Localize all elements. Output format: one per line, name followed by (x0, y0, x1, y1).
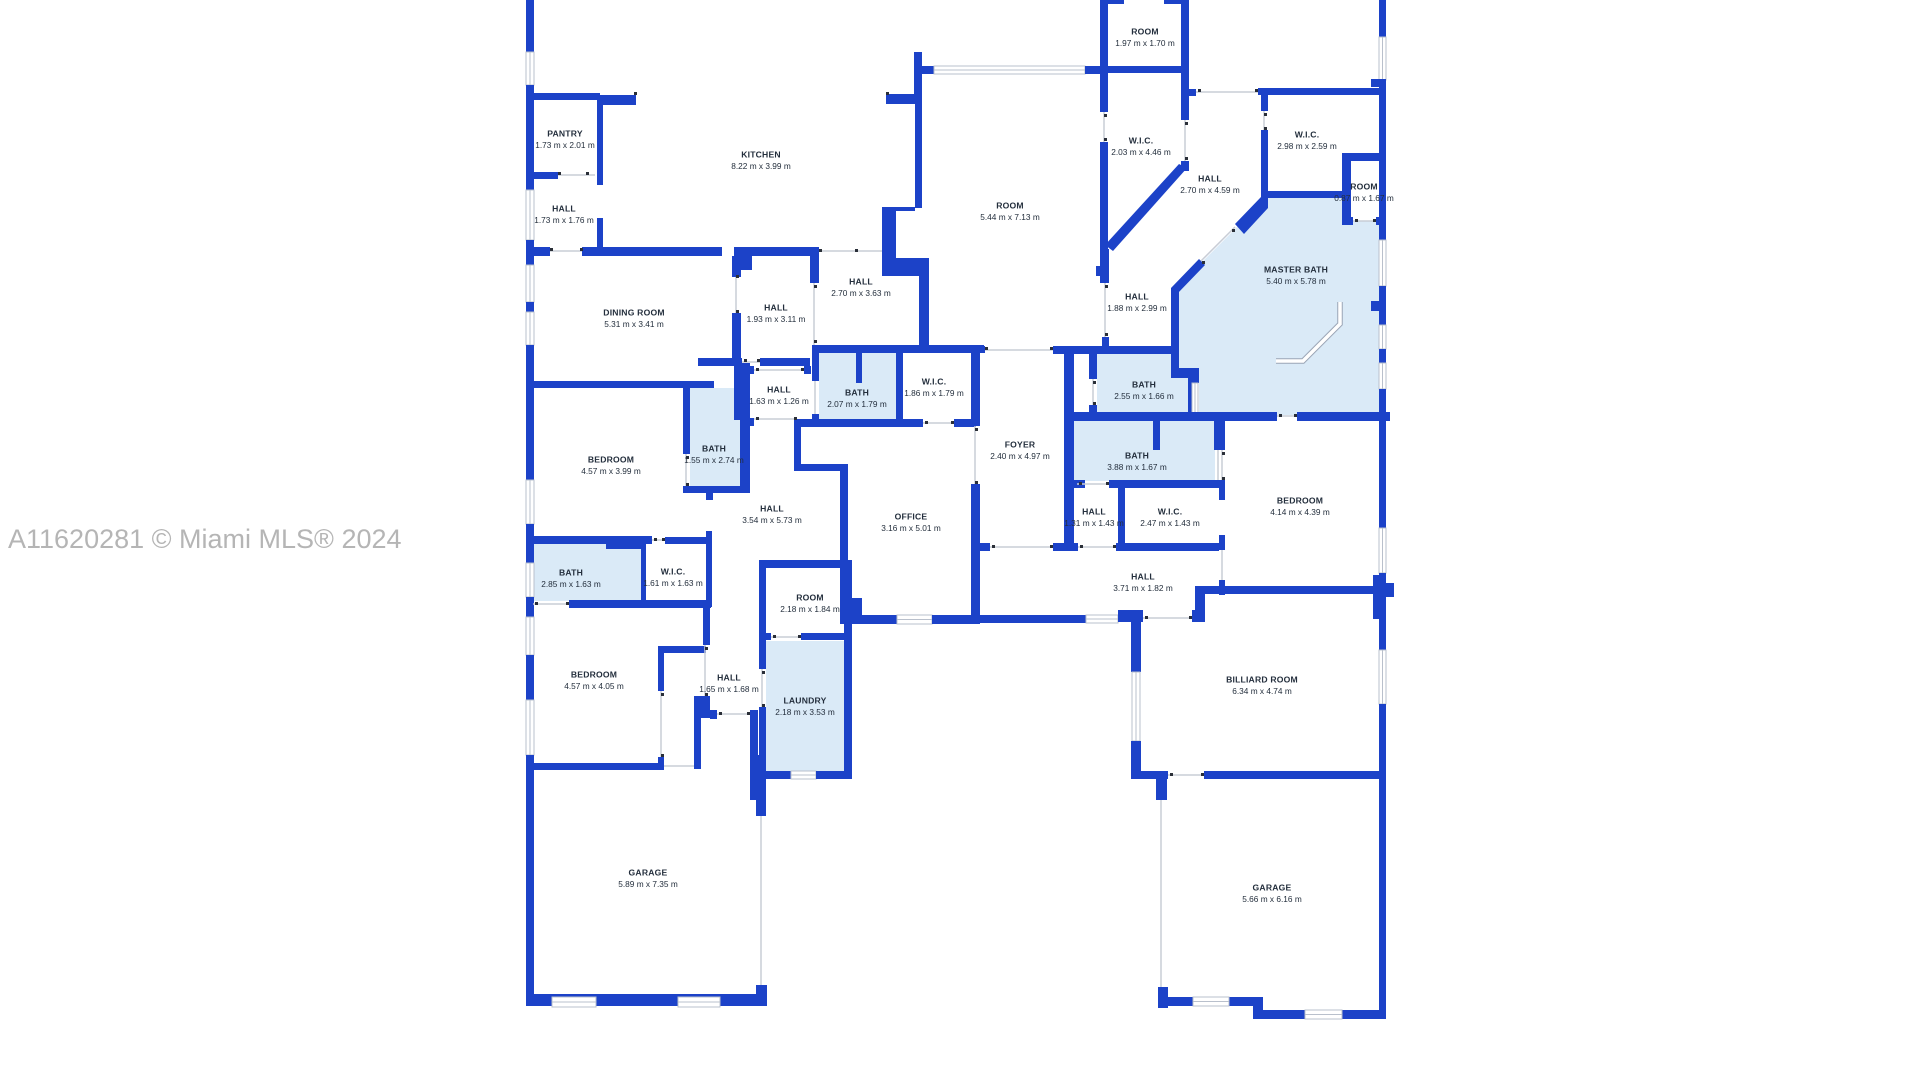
svg-text:ROOM: ROOM (996, 201, 1024, 211)
svg-text:2.40 m x 4.97 m: 2.40 m x 4.97 m (990, 451, 1050, 461)
svg-text:BATH: BATH (845, 388, 869, 398)
svg-text:5.31 m x 3.41 m: 5.31 m x 3.41 m (604, 319, 664, 329)
svg-text:2.70 m x 3.63 m: 2.70 m x 3.63 m (831, 288, 891, 298)
svg-text:DINING ROOM: DINING ROOM (603, 308, 664, 318)
svg-text:LAUNDRY: LAUNDRY (783, 696, 826, 706)
svg-text:OFFICE: OFFICE (895, 512, 928, 522)
svg-text:1.86 m x 1.79 m: 1.86 m x 1.79 m (904, 388, 964, 398)
svg-text:HALL: HALL (717, 673, 741, 683)
svg-text:BEDROOM: BEDROOM (571, 670, 617, 680)
svg-text:1.31 m x 1.43 m: 1.31 m x 1.43 m (1064, 518, 1124, 528)
svg-text:1.73 m x 1.76 m: 1.73 m x 1.76 m (534, 215, 594, 225)
svg-text:BATH: BATH (1132, 380, 1156, 390)
svg-text:W.I.C.: W.I.C. (1129, 136, 1154, 146)
svg-text:8.22 m x 3.99 m: 8.22 m x 3.99 m (731, 161, 791, 171)
svg-text:HALL: HALL (1125, 292, 1149, 302)
svg-text:GARAGE: GARAGE (1253, 883, 1292, 893)
svg-text:1.61 m x 1.63 m: 1.61 m x 1.63 m (643, 578, 703, 588)
svg-text:5.89 m x 7.35 m: 5.89 m x 7.35 m (618, 879, 678, 889)
svg-text:2.18 m x 3.53 m: 2.18 m x 3.53 m (775, 707, 835, 717)
svg-text:A11620281 © Miami MLS® 2024: A11620281 © Miami MLS® 2024 (8, 524, 402, 554)
svg-text:HALL: HALL (1131, 572, 1155, 582)
svg-text:1.55 m x 2.74 m: 1.55 m x 2.74 m (684, 455, 744, 465)
svg-text:2.47 m x 1.43 m: 2.47 m x 1.43 m (1140, 518, 1200, 528)
svg-text:W.I.C.: W.I.C. (661, 567, 686, 577)
svg-text:3.54 m x 5.73 m: 3.54 m x 5.73 m (742, 515, 802, 525)
svg-text:ROOM: ROOM (796, 593, 824, 603)
svg-text:2.98 m x 2.59 m: 2.98 m x 2.59 m (1277, 141, 1337, 151)
svg-text:BATH: BATH (1125, 451, 1149, 461)
svg-text:4.57 m x 3.99 m: 4.57 m x 3.99 m (581, 466, 641, 476)
svg-text:2.55 m x 1.66 m: 2.55 m x 1.66 m (1114, 391, 1174, 401)
svg-text:3.16 m x 5.01 m: 3.16 m x 5.01 m (881, 523, 941, 533)
svg-text:1.65 m x 1.68 m: 1.65 m x 1.68 m (699, 684, 759, 694)
svg-text:2.85 m x 1.63 m: 2.85 m x 1.63 m (541, 579, 601, 589)
svg-text:1.97 m x 1.70 m: 1.97 m x 1.70 m (1115, 38, 1175, 48)
svg-text:HALL: HALL (849, 277, 873, 287)
svg-text:BEDROOM: BEDROOM (588, 455, 634, 465)
svg-text:6.34 m x 4.74 m: 6.34 m x 4.74 m (1232, 686, 1292, 696)
svg-text:HALL: HALL (767, 385, 791, 395)
svg-text:3.88 m x 1.67 m: 3.88 m x 1.67 m (1107, 462, 1167, 472)
svg-text:PANTRY: PANTRY (547, 129, 583, 139)
svg-text:1.88 m x 2.99 m: 1.88 m x 2.99 m (1107, 303, 1167, 313)
svg-text:HALL: HALL (760, 504, 784, 514)
svg-text:HALL: HALL (1082, 507, 1106, 517)
svg-text:HALL: HALL (552, 204, 576, 214)
svg-text:4.14 m x 4.39 m: 4.14 m x 4.39 m (1270, 507, 1330, 517)
svg-text:HALL: HALL (764, 303, 788, 313)
svg-text:1.63 m x 1.26 m: 1.63 m x 1.26 m (749, 396, 809, 406)
svg-text:1.73 m x 2.01 m: 1.73 m x 2.01 m (535, 140, 595, 150)
svg-text:5.44 m x 7.13 m: 5.44 m x 7.13 m (980, 212, 1040, 222)
svg-text:HALL: HALL (1198, 174, 1222, 184)
svg-text:KITCHEN: KITCHEN (741, 150, 781, 160)
svg-text:BATH: BATH (559, 568, 583, 578)
svg-text:5.66 m x 6.16 m: 5.66 m x 6.16 m (1242, 894, 1302, 904)
svg-text:1.93 m x 3.11 m: 1.93 m x 3.11 m (747, 314, 806, 324)
svg-text:2.03 m x 4.46 m: 2.03 m x 4.46 m (1111, 147, 1171, 157)
svg-text:BEDROOM: BEDROOM (1277, 496, 1323, 506)
svg-text:4.57 m x 4.05 m: 4.57 m x 4.05 m (564, 681, 624, 691)
svg-text:3.71 m x 1.82 m: 3.71 m x 1.82 m (1113, 583, 1173, 593)
svg-text:ROOM: ROOM (1350, 182, 1378, 192)
svg-text:2.07 m x 1.79 m: 2.07 m x 1.79 m (827, 399, 887, 409)
svg-text:BATH: BATH (702, 444, 726, 454)
svg-text:FOYER: FOYER (1005, 440, 1036, 450)
svg-text:W.I.C.: W.I.C. (1158, 507, 1183, 517)
svg-text:GARAGE: GARAGE (629, 868, 668, 878)
svg-text:W.I.C.: W.I.C. (922, 377, 947, 387)
svg-text:ROOM: ROOM (1131, 27, 1159, 37)
svg-text:W.I.C.: W.I.C. (1295, 130, 1320, 140)
svg-text:BILLIARD ROOM: BILLIARD ROOM (1226, 675, 1298, 685)
svg-text:2.70 m x 4.59 m: 2.70 m x 4.59 m (1180, 185, 1240, 195)
svg-text:5.40 m x 5.78 m: 5.40 m x 5.78 m (1266, 276, 1326, 286)
svg-text:MASTER BATH: MASTER BATH (1264, 265, 1328, 275)
svg-text:2.18 m x 1.84 m: 2.18 m x 1.84 m (780, 604, 840, 614)
svg-text:0.87 m x 1.67 m: 0.87 m x 1.67 m (1334, 193, 1394, 203)
